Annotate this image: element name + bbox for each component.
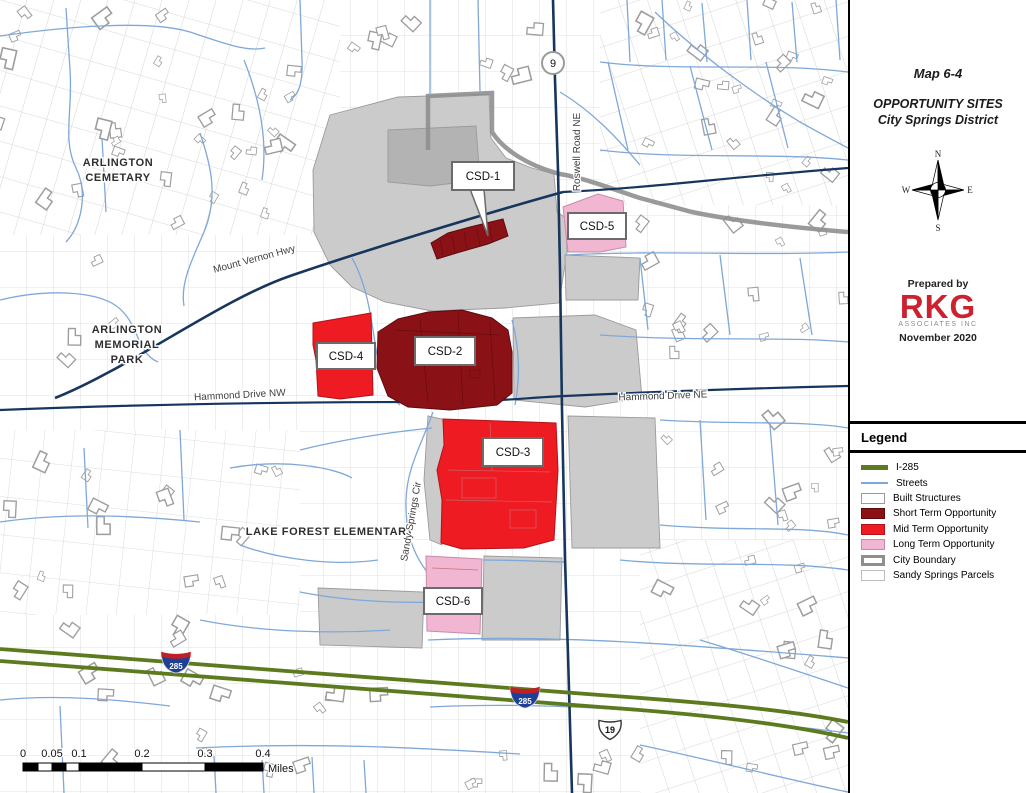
compass-e: E [967,185,973,195]
label-roswell-road-ne: Roswell Road NE [572,112,583,191]
svg-text:CSD-3: CSD-3 [496,447,531,459]
label-memorial-park-1: ARLINGTON [92,324,163,336]
scale-tick-0: 0 [20,748,26,760]
compass-s: S [935,223,940,233]
scale-tick-01: 0.1 [71,748,86,760]
legend-item-long-term: Long Term Opportunity [861,537,1026,552]
map-number: Map 6-4 [850,66,1026,81]
legend-item-i285: I-285 [861,460,1026,475]
svg-text:CSD-2: CSD-2 [428,346,463,358]
scale-unit: Miles [268,763,294,775]
map-title-line1: OPPORTUNITY SITES [850,97,1026,113]
compass-w: W [902,185,911,195]
label-csd-3: CSD-3 [483,438,543,466]
compass-n: N [935,149,942,159]
streets-line-swatch [861,482,888,485]
label-memorial-park-2: MEMORIAL [95,339,160,351]
credit-date: November 2020 [850,332,1026,344]
map-document: ARLINGTON CEMETARY ARLINGTON MEMORIAL PA… [0,0,1026,793]
legend-item-parcels: Sandy Springs Parcels [861,568,1026,583]
label-arlington-cemetary-1: ARLINGTON [83,157,154,169]
svg-text:CSD-1: CSD-1 [466,171,501,183]
compass-rose: N E S W [898,148,978,234]
scale-tick-005: 0.05 [41,748,62,760]
rkg-logo-subtext: ASSOCIATES INC [850,321,1026,329]
state-route-9-number: 9 [550,58,556,70]
rkg-logo: RKG [850,290,1026,323]
side-panel: Map 6-4 OPPORTUNITY SITES City Springs D… [848,0,1026,793]
scale-bar-segments [23,763,263,771]
map-title: OPPORTUNITY SITES City Springs District [850,97,1026,128]
legend-item-short-term: Short Term Opportunity [861,506,1026,521]
interstate-285-number: 285 [169,662,183,671]
short-term-swatch [861,508,885,519]
label-csd-1: CSD-1 [452,162,514,190]
i285-line-swatch [861,465,888,470]
legend-item-streets: Streets [861,475,1026,490]
legend-item-mid-term: Mid Term Opportunity [861,522,1026,537]
label-csd-4: CSD-4 [317,343,375,369]
scale-tick-04: 0.4 [255,748,270,760]
svg-text:CSD-4: CSD-4 [329,351,364,363]
parcels-swatch [861,570,885,581]
mid-term-swatch [861,524,885,535]
label-csd-5: CSD-5 [568,213,626,239]
svg-text:CSD-5: CSD-5 [580,221,615,233]
label-lake-forest-elementary: LAKE FOREST ELEMENTARY [246,526,414,538]
interstate-285-number-2: 285 [518,697,532,706]
legend-item-built-structures: Built Structures [861,491,1026,506]
scale-tick-02: 0.2 [134,748,149,760]
city-boundary-swatch [861,555,885,566]
legend: Legend I-285 Streets Built Structures Sh… [850,421,1026,591]
compass-wrap: N E S W [850,148,1026,239]
label-arlington-cemetary-2: CEMETARY [85,172,150,184]
map-title-line2: City Springs District [850,113,1026,129]
built-structures-swatch [861,493,885,504]
label-csd-2: CSD-2 [415,337,475,365]
legend-items: I-285 Streets Built Structures Short Ter… [850,453,1026,591]
label-memorial-park-3: PARK [111,354,144,366]
label-csd-6: CSD-6 [424,588,482,614]
long-term-swatch [861,539,885,550]
map-canvas: ARLINGTON CEMETARY ARLINGTON MEMORIAL PA… [0,0,848,793]
map-svg: ARLINGTON CEMETARY ARLINGTON MEMORIAL PA… [0,0,848,793]
state-route-9-shield: 9 [542,52,564,74]
legend-title: Legend [850,424,1026,453]
svg-text:CSD-6: CSD-6 [436,596,471,608]
legend-item-city-boundary: City Boundary [861,552,1026,567]
us-19-number: 19 [605,725,615,735]
scale-tick-03: 0.3 [197,748,212,760]
credit-block: Prepared by RKG ASSOCIATES INC November … [850,278,1026,344]
